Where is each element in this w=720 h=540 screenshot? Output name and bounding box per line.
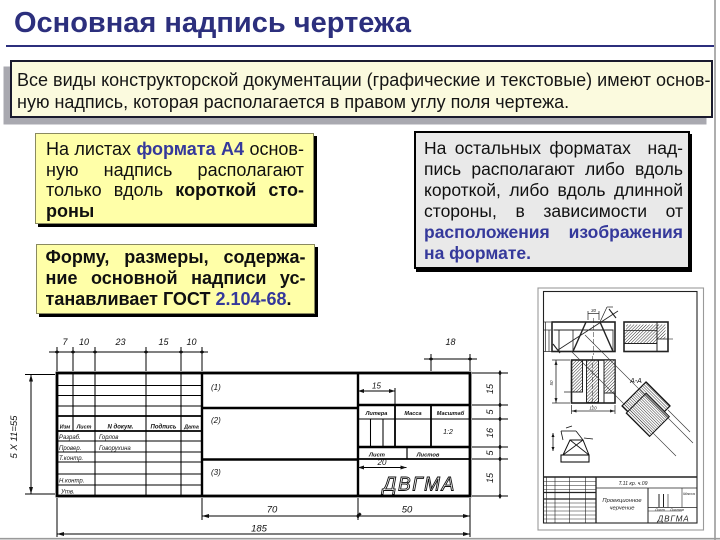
svg-text:Листов: Листов (416, 453, 440, 459)
svg-text:185: 185 (251, 524, 268, 535)
svg-text:Масса: Масса (404, 411, 421, 417)
svg-text:5: 5 (485, 450, 495, 456)
svg-text:Провер.: Провер. (59, 446, 81, 452)
svg-text:20: 20 (377, 458, 387, 467)
svg-text:Горлов: Горлов (99, 435, 118, 441)
svg-text:ДВГМА: ДВГМА (381, 475, 456, 496)
svg-text:ДВГМА: ДВГМА (657, 515, 690, 524)
svg-text:15: 15 (158, 337, 169, 347)
svg-text:50: 50 (402, 505, 413, 516)
svg-text:Проекционное: Проекционное (602, 498, 642, 504)
svg-text:5: 5 (485, 409, 495, 415)
svg-text:23: 23 (114, 337, 125, 347)
svg-text:70: 70 (267, 505, 278, 516)
svg-text:Подпись: Подпись (151, 425, 177, 431)
svg-text:15: 15 (372, 382, 381, 391)
svg-text:(1): (1) (211, 383, 221, 392)
svg-text:5 Х 11=55: 5 Х 11=55 (9, 415, 20, 459)
svg-text:1:2: 1:2 (443, 429, 453, 436)
svg-text:15: 15 (485, 472, 495, 483)
svg-text:16: 16 (485, 428, 495, 438)
svg-text:(2): (2) (211, 416, 221, 425)
svg-text:15: 15 (485, 383, 495, 394)
svg-text:А-А: А-А (629, 378, 642, 385)
svg-text:10: 10 (186, 337, 196, 347)
svg-text:Утв.: Утв. (60, 490, 75, 496)
svg-text:Говорухина: Говорухина (99, 446, 131, 452)
svg-text:18: 18 (445, 337, 455, 347)
svg-text:Дата: Дата (183, 425, 199, 431)
svg-text:Т.11 кр. ч.09: Т.11 кр. ч.09 (618, 481, 647, 487)
svg-text:110: 110 (589, 406, 597, 411)
svg-text:Изм: Изм (60, 425, 71, 431)
svg-text:Разраб.: Разраб. (59, 435, 81, 441)
svg-text:Н.контр.: Н.контр. (59, 479, 84, 485)
svg-text:10: 10 (79, 337, 89, 347)
svg-text:Т.контр.: Т.контр. (59, 456, 83, 462)
svg-text:Масса: Масса (683, 491, 696, 496)
svg-text:N докум.: N докум. (108, 425, 134, 431)
svg-text:50: 50 (549, 380, 554, 386)
svg-text:черчение: черчение (609, 506, 635, 512)
svg-text:Лист: Лист (76, 425, 92, 431)
svg-text:30: 30 (591, 308, 597, 313)
svg-text:Листов: Листов (669, 508, 684, 512)
svg-text:Масштаб: Масштаб (437, 410, 465, 417)
svg-text:(3): (3) (211, 468, 221, 477)
svg-text:7: 7 (62, 337, 68, 347)
svg-text:Литера: Литера (365, 411, 388, 417)
svg-text:Лист: Лист (654, 508, 665, 512)
